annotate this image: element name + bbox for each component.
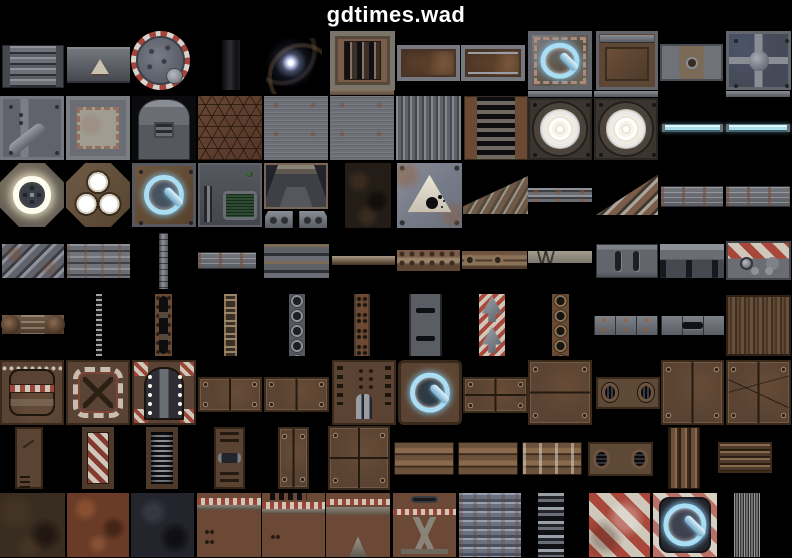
texture-slotted-plate bbox=[596, 244, 658, 278]
texture-panel-pair bbox=[198, 377, 262, 412]
texture-lined-bar bbox=[726, 186, 790, 207]
texture-rust-sliver bbox=[330, 89, 394, 95]
texture-tech-console bbox=[198, 163, 262, 227]
texture-floodlight bbox=[594, 98, 658, 160]
texture-rust-panel-lined bbox=[461, 45, 525, 81]
texture-light-flare bbox=[266, 38, 322, 94]
texture-bracket-wall bbox=[326, 493, 390, 557]
texture-door-quad bbox=[328, 426, 390, 490]
texture-small-lined-bar bbox=[198, 252, 256, 269]
power-symbol-icon bbox=[401, 363, 459, 422]
texture-dark-slate bbox=[131, 493, 194, 557]
texture-octagon-light-ring bbox=[0, 163, 64, 227]
texture-ridge-bar bbox=[458, 442, 518, 475]
texture-twin-hole-panel bbox=[596, 377, 660, 409]
texture-wire-strands bbox=[734, 493, 760, 557]
texture-capped-bar bbox=[2, 315, 64, 334]
texture-strut-wall bbox=[393, 493, 456, 557]
texture-seamed-bar bbox=[594, 316, 658, 335]
texture-plate-diag-pipe bbox=[0, 96, 64, 160]
texture-hazard-machine bbox=[726, 241, 791, 280]
texture-glow-tube bbox=[662, 124, 723, 132]
texture-machine-face bbox=[132, 96, 196, 160]
texture-metal-slats bbox=[2, 45, 64, 88]
texture-ladder-grate bbox=[464, 96, 528, 160]
texture-vent-column bbox=[155, 294, 172, 356]
texture-grille-pillar bbox=[146, 427, 178, 489]
texture-dark-column bbox=[222, 40, 240, 90]
texture-cross-plate bbox=[726, 31, 791, 90]
texture-chain-column bbox=[224, 294, 237, 356]
texture-brushed-metal bbox=[330, 96, 394, 160]
texture-thin-ledge bbox=[332, 256, 395, 265]
texture-oval-hole-bar bbox=[588, 442, 653, 476]
texture-grain-panel bbox=[726, 295, 791, 356]
texture-ledge-wall bbox=[197, 493, 261, 557]
texture-stairs-shallow bbox=[463, 176, 528, 214]
texture-hex-brown bbox=[198, 96, 262, 160]
texture-thin-chain bbox=[96, 294, 102, 356]
texture-panel-quad-small bbox=[463, 377, 528, 413]
texture-notched-bar bbox=[528, 251, 592, 263]
texture-power-plate-metal bbox=[528, 31, 592, 90]
texture-rust-panel bbox=[397, 45, 460, 81]
texture-narrow-door-pair bbox=[278, 427, 309, 489]
texture-lined-bar bbox=[661, 186, 723, 207]
power-symbol-icon bbox=[135, 166, 193, 224]
texture-rail-bar bbox=[528, 188, 592, 202]
texture-corrugated-gray bbox=[396, 96, 461, 160]
texture-support-post bbox=[159, 233, 168, 289]
texture-banded-column bbox=[538, 493, 564, 557]
texture-brushed-metal bbox=[264, 96, 328, 160]
texture-vented-wall bbox=[262, 493, 325, 557]
texture-twin-door-panel bbox=[661, 360, 724, 425]
texture-alcove-brackets bbox=[264, 211, 328, 228]
texture-vent-pipe-panel bbox=[332, 360, 396, 425]
texture-hazard-pillar bbox=[82, 427, 114, 489]
texture-panel-pair bbox=[264, 377, 329, 412]
texture-glow-tube bbox=[726, 124, 790, 132]
texture-stairs-steep bbox=[596, 172, 658, 215]
texture-plate-with-dot bbox=[660, 44, 723, 81]
power-symbol-icon bbox=[532, 35, 588, 86]
texture-warning-plate-small bbox=[67, 47, 130, 83]
texture-rust-frame-panel bbox=[596, 31, 658, 90]
texture-round-hatch bbox=[131, 31, 190, 90]
texture-riveted-bar bbox=[397, 250, 460, 271]
texture-chevron-column bbox=[479, 294, 505, 356]
texture-dot-column-rust bbox=[354, 294, 370, 356]
texture-hazard-door bbox=[0, 360, 64, 425]
texture-corrugated-blue bbox=[459, 493, 521, 557]
texture-clamp-pillar bbox=[214, 427, 245, 489]
texture-banded-girder bbox=[264, 244, 329, 278]
texture-diagonal-girder bbox=[2, 244, 64, 278]
texture-dark-rock bbox=[345, 163, 391, 228]
texture-hazard-stripes bbox=[589, 493, 650, 557]
texture-tabbed-plate bbox=[660, 244, 724, 278]
texture-rusty-grate bbox=[330, 31, 395, 90]
texture-floodlight bbox=[528, 98, 592, 160]
texture-ridge-bar bbox=[394, 442, 454, 475]
texture-triple-rib-pillar bbox=[668, 427, 700, 489]
texture-vented-pillar bbox=[15, 427, 43, 489]
texture-sheet: gdtimes.wad bbox=[0, 0, 792, 558]
texture-gray-sliver bbox=[594, 91, 658, 97]
texture-slotted-column bbox=[409, 294, 442, 356]
texture-gray-sliver bbox=[528, 91, 592, 97]
texture-ridged-girder bbox=[67, 244, 130, 278]
texture-alcove-3d bbox=[264, 163, 328, 209]
texture-power-speaker bbox=[653, 493, 717, 557]
texture-power-dial-round bbox=[132, 163, 196, 227]
texture-octagon-three-lights bbox=[66, 163, 130, 227]
texture-hazard-ring-plate bbox=[66, 360, 130, 425]
texture-ridge-bar-streaked bbox=[522, 442, 582, 475]
texture-dark-dirt bbox=[0, 493, 65, 557]
texture-pipe-fitting-bar bbox=[462, 251, 527, 269]
texture-port-column-gray bbox=[289, 294, 305, 356]
texture-explosive-sign bbox=[397, 163, 462, 228]
texture-port-column-rust bbox=[552, 294, 569, 356]
texture-split-panel bbox=[528, 360, 592, 425]
texture-arch-doorway bbox=[132, 360, 196, 425]
texture-torn-plaster-plate bbox=[66, 96, 130, 160]
texture-slot-bar bbox=[661, 316, 724, 335]
texture-red-rust bbox=[67, 493, 129, 557]
texture-scratched-door-panel bbox=[726, 360, 791, 425]
page-title: gdtimes.wad bbox=[0, 2, 792, 28]
texture-ribbed-block bbox=[718, 442, 772, 473]
texture-power-plate-brown bbox=[398, 360, 462, 425]
texture-gray-sliver bbox=[726, 91, 790, 97]
power-symbol-icon bbox=[653, 493, 717, 557]
